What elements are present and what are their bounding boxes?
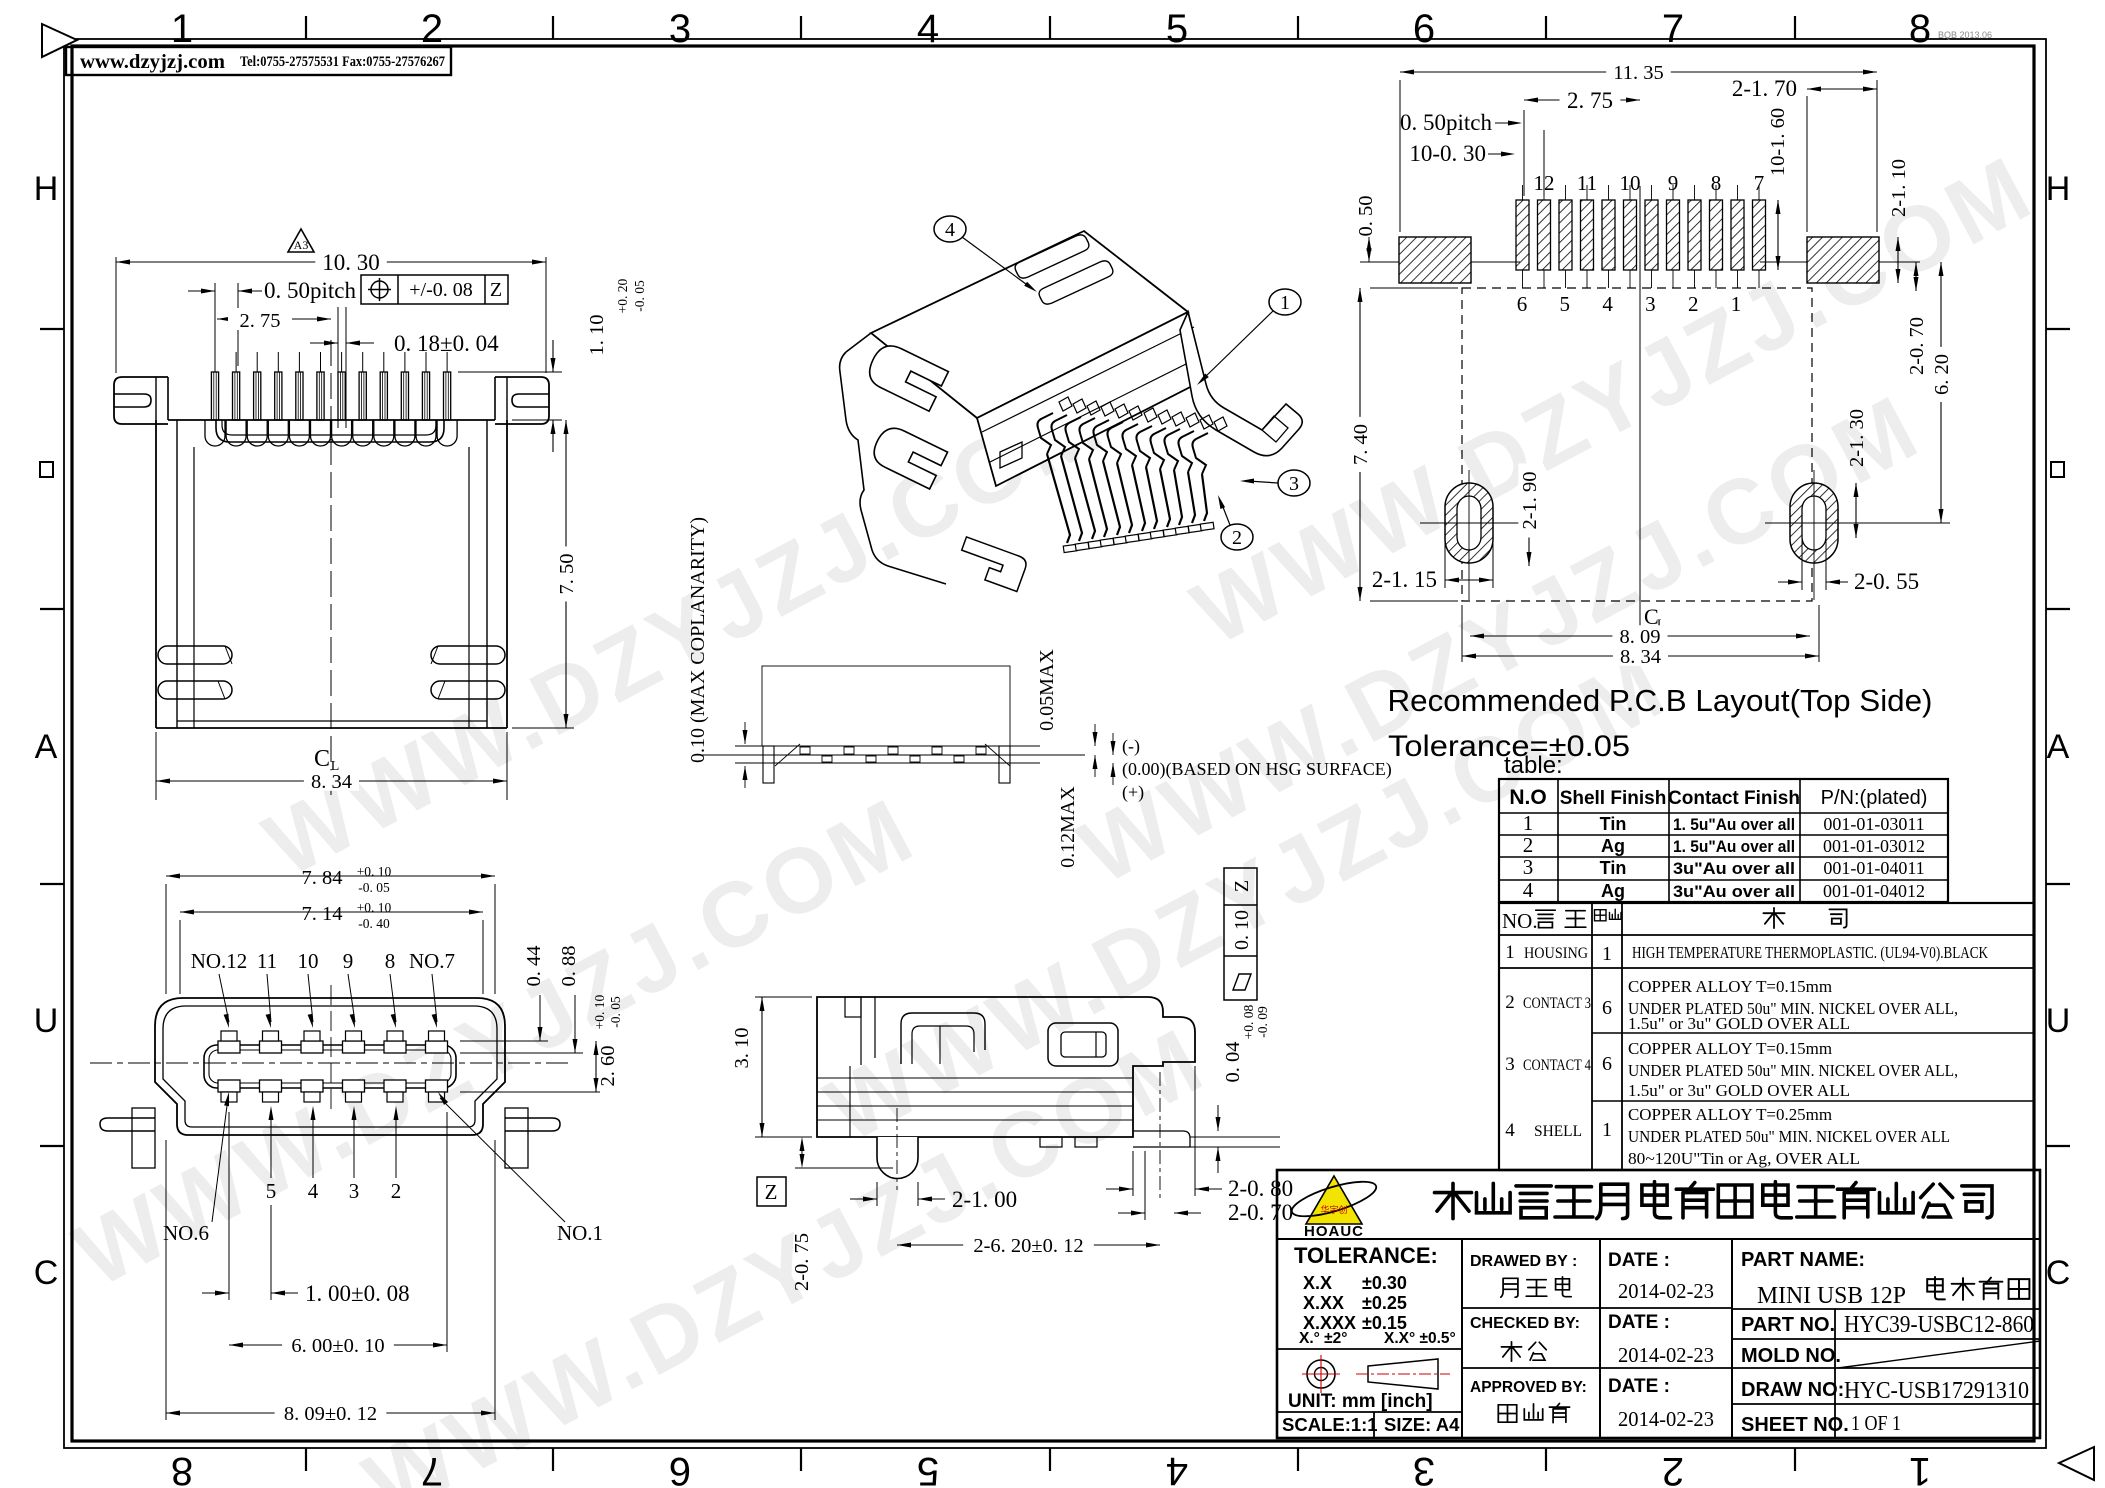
svg-text:C: C <box>2046 1254 2071 1292</box>
svg-text:SHELL: SHELL <box>1534 1123 1582 1140</box>
svg-text:5: 5 <box>266 1179 277 1203</box>
svg-text:TOLERANCE:: TOLERANCE: <box>1294 1243 1438 1268</box>
svg-text:2-0. 55: 2-0. 55 <box>1854 569 1919 594</box>
svg-text:6: 6 <box>1602 1053 1612 1075</box>
svg-text:0.12MAX: 0.12MAX <box>1057 786 1079 868</box>
svg-text:0.05MAX: 0.05MAX <box>1036 649 1058 731</box>
svg-text:2. 75: 2. 75 <box>240 310 281 332</box>
svg-text:HYC-USB17291310: HYC-USB17291310 <box>1844 1378 2029 1404</box>
svg-text:APPROVED BY:: APPROVED BY: <box>1470 1379 1587 1396</box>
svg-text:A3: A3 <box>294 238 309 252</box>
svg-text:7: 7 <box>421 1449 443 1488</box>
svg-text:7. 84: 7. 84 <box>302 867 343 889</box>
svg-text:www.dzyjzj.com: www.dzyjzj.com <box>80 51 225 73</box>
svg-text:2-0. 70: 2-0. 70 <box>1906 317 1928 375</box>
svg-text:+/-0. 08: +/-0. 08 <box>409 279 473 301</box>
svg-text:±0.25: ±0.25 <box>1362 1293 1407 1313</box>
svg-text:8: 8 <box>1711 171 1722 195</box>
svg-text:0. 10: 0. 10 <box>1231 910 1253 950</box>
svg-text:1. 10: 1. 10 <box>586 315 608 356</box>
svg-text:1. 5u"Au over all: 1. 5u"Au over all <box>1673 815 1795 834</box>
svg-text:HYC39-USBC12-860: HYC39-USBC12-860 <box>1844 1312 2034 1338</box>
svg-text:C: C <box>34 1254 59 1292</box>
svg-text:3: 3 <box>1645 292 1656 316</box>
svg-text:X.XX: X.XX <box>1303 1293 1344 1313</box>
svg-text:SIZE: A4: SIZE: A4 <box>1384 1414 1460 1435</box>
svg-text:COPPER ALLOY T=0.15mm: COPPER ALLOY T=0.15mm <box>1628 977 1832 996</box>
svg-text:5: 5 <box>1560 292 1571 316</box>
svg-text:001-01-04011: 001-01-04011 <box>1823 858 1924 878</box>
svg-text:+0. 20: +0. 20 <box>615 278 630 313</box>
svg-text:MINI USB 12P: MINI USB 12P <box>1757 1283 1906 1309</box>
svg-text:3. 10: 3. 10 <box>731 1028 753 1069</box>
svg-text:1: 1 <box>1602 943 1612 965</box>
svg-text:HIGH TEMPERATURE THERMOPLASTIC: HIGH TEMPERATURE THERMOPLASTIC. (UL94-V0… <box>1632 943 1989 962</box>
svg-text:8. 09±0. 12: 8. 09±0. 12 <box>284 1403 377 1425</box>
svg-text:NO.6: NO.6 <box>163 1221 209 1245</box>
svg-text:C: C <box>314 746 330 772</box>
svg-text:4: 4 <box>1523 878 1534 902</box>
svg-text:0. 18±0. 04: 0. 18±0. 04 <box>394 331 499 356</box>
svg-text:10-1. 60: 10-1. 60 <box>1767 108 1789 176</box>
svg-text:80~120U"Tin or Ag, OVER ALL: 80~120U"Tin or Ag, OVER ALL <box>1628 1149 1860 1168</box>
svg-text:UNIT: mm [inch]: UNIT: mm [inch] <box>1288 1391 1433 1412</box>
svg-text:11: 11 <box>257 949 277 973</box>
svg-text:Z: Z <box>1231 880 1253 892</box>
svg-text:SCALE:1:1: SCALE:1:1 <box>1282 1414 1378 1435</box>
svg-text:MOLD NO.: MOLD NO. <box>1741 1345 1841 1367</box>
svg-text:-0. 05: -0. 05 <box>632 280 647 312</box>
svg-text:1: 1 <box>1909 1449 1931 1488</box>
svg-text:3u"Au over all: 3u"Au over all <box>1673 859 1795 878</box>
svg-text:3: 3 <box>1289 473 1299 495</box>
svg-text:2-0. 75: 2-0. 75 <box>791 1233 813 1291</box>
svg-text:H: H <box>2046 170 2071 208</box>
svg-text:Tin: Tin <box>1600 858 1627 878</box>
svg-text:2: 2 <box>1662 1449 1684 1488</box>
svg-text:4: 4 <box>1602 292 1613 316</box>
svg-text:0. 50: 0. 50 <box>1355 196 1377 237</box>
svg-text:5: 5 <box>917 1449 939 1488</box>
svg-text:8. 09: 8. 09 <box>1620 626 1661 648</box>
svg-text:A: A <box>2047 728 2070 766</box>
svg-text:2: 2 <box>421 7 443 51</box>
svg-text:8. 34: 8. 34 <box>1620 646 1661 668</box>
svg-text:PART NAME:: PART NAME: <box>1741 1249 1865 1271</box>
svg-text:1: 1 <box>1505 942 1515 963</box>
svg-text:DATE :: DATE : <box>1608 1376 1670 1397</box>
svg-text:2014-02-23: 2014-02-23 <box>1618 1407 1714 1431</box>
svg-text:DATE :: DATE : <box>1608 1312 1670 1333</box>
svg-text:0. 44: 0. 44 <box>523 946 545 987</box>
svg-text:4: 4 <box>945 219 955 241</box>
svg-text:DRAW NO:: DRAW NO: <box>1741 1379 1844 1401</box>
svg-text:10-0. 30: 10-0. 30 <box>1409 141 1486 166</box>
svg-text:2-1. 70: 2-1. 70 <box>1732 76 1797 101</box>
svg-text:2-0. 80: 2-0. 80 <box>1228 1176 1293 1201</box>
svg-text:0. 88: 0. 88 <box>558 946 580 987</box>
svg-text:8: 8 <box>1909 7 1931 51</box>
svg-text:2-1. 10: 2-1. 10 <box>1888 159 1910 217</box>
svg-text:3u"Au over all: 3u"Au over all <box>1673 882 1795 901</box>
svg-text:2-0. 70: 2-0. 70 <box>1228 1200 1293 1225</box>
svg-text:NO.1: NO.1 <box>557 1221 603 1245</box>
svg-text:Ag: Ag <box>1601 881 1625 901</box>
svg-text:CHECKED BY:: CHECKED BY: <box>1470 1315 1580 1332</box>
svg-text:1.5u" or 3u" GOLD OVER ALL: 1.5u" or 3u" GOLD OVER ALL <box>1628 1014 1850 1033</box>
svg-text:P/N:(plated): P/N:(plated) <box>1821 787 1928 809</box>
svg-text:2014-02-23: 2014-02-23 <box>1618 1279 1714 1303</box>
svg-text:X.X: X.X <box>1303 1273 1332 1293</box>
svg-text:2. 75: 2. 75 <box>1567 88 1613 113</box>
svg-text:PART NO.: PART NO. <box>1741 1314 1835 1336</box>
svg-text:1: 1 <box>1731 292 1742 316</box>
svg-text:-0. 09: -0. 09 <box>1255 1006 1270 1038</box>
svg-text:(0.00)(BASED ON HSG SURFACE): (0.00)(BASED ON HSG SURFACE) <box>1122 759 1392 780</box>
svg-text:2. 60: 2. 60 <box>597 1046 619 1087</box>
svg-text:NO.12: NO.12 <box>191 949 248 973</box>
svg-text:SHEET NO.: SHEET NO. <box>1741 1414 1849 1436</box>
svg-text:HOAUC: HOAUC <box>1304 1223 1364 1240</box>
svg-text:Shell Finish: Shell Finish <box>1560 788 1667 809</box>
svg-text:2-6. 20±0. 12: 2-6. 20±0. 12 <box>973 1235 1083 1257</box>
svg-text:3: 3 <box>1413 1449 1435 1488</box>
svg-text:4: 4 <box>1505 1120 1515 1141</box>
svg-text:001-01-03012: 001-01-03012 <box>1823 836 1925 856</box>
svg-text:BQB 2013.06: BQB 2013.06 <box>1938 30 1992 40</box>
svg-text:3: 3 <box>1505 1054 1515 1075</box>
svg-text:1. 5u"Au over all: 1. 5u"Au over all <box>1673 837 1795 856</box>
svg-text:4: 4 <box>308 1179 319 1203</box>
svg-text:0. 04: 0. 04 <box>1222 1042 1244 1083</box>
svg-text:7: 7 <box>1662 7 1684 51</box>
svg-text:1 OF 1: 1 OF 1 <box>1851 1411 1901 1435</box>
svg-text:8: 8 <box>171 1449 193 1488</box>
svg-text:11. 35: 11. 35 <box>1613 62 1664 84</box>
svg-text:Tin: Tin <box>1600 814 1627 834</box>
svg-text:0. 50pitch: 0. 50pitch <box>1400 110 1492 135</box>
svg-text:U: U <box>2046 1002 2071 1040</box>
svg-text:3: 3 <box>669 7 691 51</box>
svg-text:6. 20: 6. 20 <box>1931 354 1953 395</box>
svg-text:2-1. 00: 2-1. 00 <box>952 1187 1017 1212</box>
svg-text:0.10 (MAX COPLANARITY): 0.10 (MAX COPLANARITY) <box>687 517 709 763</box>
svg-text:-0. 05: -0. 05 <box>358 880 390 895</box>
svg-text:2-1. 30: 2-1. 30 <box>1846 409 1868 467</box>
svg-text:DRAWED BY :: DRAWED BY : <box>1470 1253 1577 1270</box>
svg-text:1.5u" or 3u" GOLD OVER ALL: 1.5u" or 3u" GOLD OVER ALL <box>1628 1081 1850 1100</box>
svg-text:8: 8 <box>385 949 396 973</box>
svg-text:5: 5 <box>1166 7 1188 51</box>
svg-text:Tel:0755-27575531 Fax:0755-27: Tel:0755-27575531 Fax:0755-27576267 <box>240 54 445 70</box>
svg-text:2: 2 <box>1505 992 1515 1013</box>
svg-text:+0. 10: +0. 10 <box>357 864 392 879</box>
svg-text:+0. 08: +0. 08 <box>1241 1004 1256 1039</box>
svg-text:Z: Z <box>490 279 502 301</box>
svg-text:HOUSING: HOUSING <box>1524 945 1588 962</box>
svg-text:6: 6 <box>1413 7 1435 51</box>
svg-text:A: A <box>35 728 58 766</box>
svg-text:2-1. 90: 2-1. 90 <box>1519 471 1541 529</box>
svg-text:华宇创: 华宇创 <box>1320 1204 1347 1215</box>
svg-text:X.° ±2°: X.° ±2° <box>1299 1330 1347 1347</box>
svg-text:1: 1 <box>171 7 193 51</box>
svg-text:2014-02-23: 2014-02-23 <box>1618 1343 1714 1367</box>
svg-text:001-01-03011: 001-01-03011 <box>1823 814 1924 834</box>
svg-text:1: 1 <box>1523 811 1534 835</box>
svg-text:table:: table: <box>1504 752 1563 779</box>
svg-text:7. 50: 7. 50 <box>556 554 578 595</box>
svg-text:Recommended P.C.B Layout(Top: Recommended P.C.B Layout(Top Side) <box>1388 683 1933 718</box>
svg-text:H: H <box>34 170 59 208</box>
svg-text:CONTACT 4: CONTACT 4 <box>1523 1057 1591 1074</box>
svg-text:2: 2 <box>1688 292 1699 316</box>
svg-text:10. 30: 10. 30 <box>322 250 380 275</box>
svg-text:+0. 10: +0. 10 <box>592 994 607 1029</box>
svg-text:4: 4 <box>1166 1449 1188 1488</box>
svg-text:N.O: N.O <box>1509 786 1546 809</box>
svg-text:COPPER ALLOY T=0.15mm: COPPER ALLOY T=0.15mm <box>1628 1039 1832 1058</box>
svg-text:001-01-04012: 001-01-04012 <box>1823 881 1925 901</box>
svg-text:1: 1 <box>1280 292 1290 314</box>
svg-text:9: 9 <box>1668 171 1679 195</box>
svg-text:UNDER PLATED 50u" MIN. NICKEL: UNDER PLATED 50u" MIN. NICKEL OVER ALL, <box>1628 1061 1958 1080</box>
svg-text:2-1. 15: 2-1. 15 <box>1372 567 1437 592</box>
svg-text:(-): (-) <box>1122 736 1140 757</box>
svg-text:Contact Finish: Contact Finish <box>1668 788 1800 809</box>
svg-text:1: 1 <box>1602 1119 1612 1141</box>
svg-text:0. 50pitch: 0. 50pitch <box>264 278 356 303</box>
svg-text:2: 2 <box>1232 527 1242 549</box>
svg-text:6: 6 <box>1517 292 1528 316</box>
svg-text:4: 4 <box>917 7 939 51</box>
svg-text:6: 6 <box>1602 997 1612 1019</box>
svg-text:2: 2 <box>391 1179 402 1203</box>
svg-text:UNDER PLATED 50u" MIN. NICKEL: UNDER PLATED 50u" MIN. NICKEL OVER ALL <box>1628 1127 1950 1146</box>
svg-text:+0. 10: +0. 10 <box>357 900 392 915</box>
svg-text:Z: Z <box>765 1180 778 1204</box>
svg-text:DATE :: DATE : <box>1608 1250 1670 1271</box>
svg-text:11: 11 <box>1577 171 1597 195</box>
svg-text:NO.7: NO.7 <box>409 949 455 973</box>
svg-text:3: 3 <box>1523 855 1534 879</box>
svg-text:8. 34: 8. 34 <box>311 771 352 793</box>
svg-text:(+): (+) <box>1122 782 1144 803</box>
svg-text:1. 00±0. 08: 1. 00±0. 08 <box>305 1281 410 1306</box>
svg-text:6. 00±0. 10: 6. 00±0. 10 <box>291 1335 384 1357</box>
svg-text:-0. 05: -0. 05 <box>608 996 623 1028</box>
svg-text:U: U <box>34 1002 59 1040</box>
svg-text:-0. 40: -0. 40 <box>358 916 390 931</box>
svg-text:10: 10 <box>298 949 319 973</box>
svg-text:10: 10 <box>1620 171 1641 195</box>
svg-text:Ag: Ag <box>1601 836 1625 856</box>
svg-text:3: 3 <box>349 1179 360 1203</box>
svg-text:±0.30: ±0.30 <box>1362 1273 1407 1293</box>
svg-text:NO.: NO. <box>1502 909 1538 933</box>
svg-text:9: 9 <box>343 949 354 973</box>
svg-text:CONTACT 3: CONTACT 3 <box>1523 995 1591 1012</box>
svg-text:7: 7 <box>1754 171 1765 195</box>
svg-text:6: 6 <box>669 1449 691 1488</box>
svg-text:2: 2 <box>1523 833 1534 857</box>
svg-text:7. 14: 7. 14 <box>302 903 343 925</box>
svg-text:COPPER ALLOY T=0.25mm: COPPER ALLOY T=0.25mm <box>1628 1105 1832 1124</box>
svg-text:X.X° ±0.5°: X.X° ±0.5° <box>1384 1330 1456 1347</box>
svg-text:7. 40: 7. 40 <box>1350 424 1372 465</box>
